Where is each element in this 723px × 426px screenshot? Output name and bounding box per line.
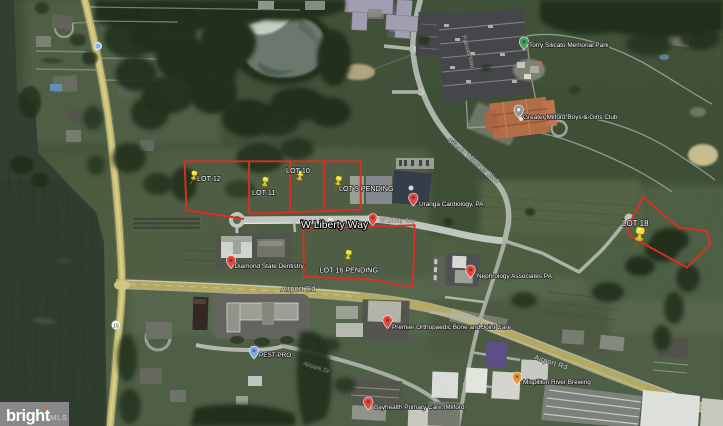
svg-text:MLS: MLS bbox=[50, 413, 68, 422]
svg-text:bright: bright bbox=[6, 407, 51, 425]
